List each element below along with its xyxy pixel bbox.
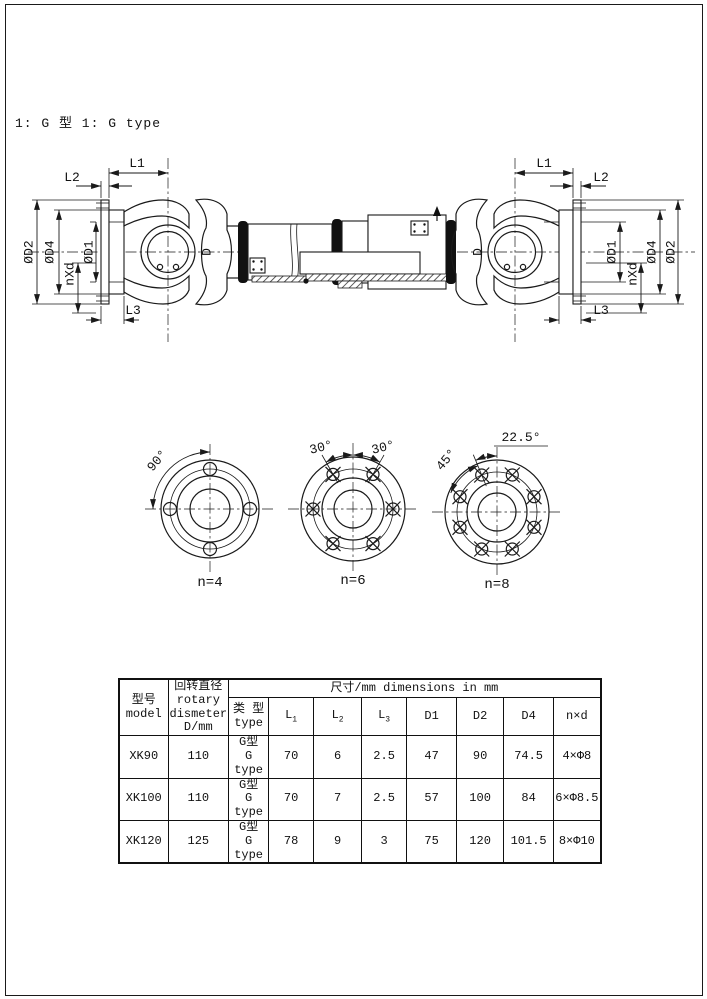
left-flange: [96, 200, 124, 304]
dim-label-d-right: D: [470, 248, 485, 256]
cell-model: XK90: [119, 736, 168, 778]
header-dimensions-span: 尺寸/mm dimensions in mm: [229, 679, 601, 698]
dim-label-d4-right: ØD4: [644, 240, 659, 264]
cell-l2: 6: [314, 736, 362, 778]
cell-l1: 70: [269, 778, 314, 820]
cell-d4: 84: [504, 778, 554, 820]
cell-rotary: 110: [168, 736, 229, 778]
header-rotary-en1: rotary: [177, 693, 220, 707]
cell-l1: 70: [269, 736, 314, 778]
view-label-n6: n=6: [340, 573, 365, 589]
header-model: 型号 model: [119, 679, 168, 736]
table-row-xk120: XK120 125 G型G type 78 9 3 75 120 101.5 8…: [119, 820, 601, 863]
spec-table-container: 型号 model 回转直径 rotary dismeter D/mm 尺寸/mm…: [118, 678, 602, 864]
angle-label-22-5: 22.5°: [501, 430, 540, 445]
angle-label-90: 90°: [144, 447, 171, 475]
angle-label-30-left: 30°: [308, 437, 334, 457]
cell-model: XK120: [119, 820, 168, 863]
seal-ring: [238, 221, 248, 283]
flange-view-n8: 45° 22.5° n=8: [432, 430, 562, 593]
dim-label-nxd-left: nXd: [62, 262, 77, 285]
cell-nxd: 8×Φ10: [554, 820, 601, 863]
table-row-xk100: XK100 110 G型G type 70 7 2.5 57 100 84 6×…: [119, 778, 601, 820]
cell-l1: 78: [269, 820, 314, 863]
flange-view-n6: 30° 30° n=6: [288, 437, 418, 589]
dim-label-d-left: D: [199, 248, 214, 256]
cell-rotary: 110: [168, 778, 229, 820]
dim-label-l3-right: L3: [593, 303, 609, 318]
cell-nxd: 6×Φ8.5: [554, 778, 601, 820]
header-rotary-diameter: 回转直径 rotary dismeter D/mm: [168, 679, 229, 736]
cell-l3: 2.5: [362, 736, 407, 778]
cell-type: G型G type: [229, 736, 269, 778]
cell-nxd: 4×Φ8: [554, 736, 601, 778]
header-l3: L3: [362, 698, 407, 736]
dim-label-nxd-right: nXd: [625, 262, 640, 285]
dim-label-d2-left: ØD2: [21, 240, 36, 263]
dim-label-l1-left: L1: [129, 156, 145, 171]
dim-label-d1-right: ØD1: [604, 240, 619, 264]
shaft-assembly-drawing: ØD2 ØD4 nXd ØD1 L2 L1 L3: [21, 156, 695, 342]
header-type-zh: 类 型: [233, 702, 264, 716]
dim-label-d4-left: ØD4: [42, 240, 57, 264]
cell-d2: 120: [457, 820, 504, 863]
header-l2: L2: [314, 698, 362, 736]
dim-label-d1-left: ØD1: [81, 240, 96, 264]
telescoping-shaft: [227, 206, 456, 289]
view-label-n4: n=4: [197, 575, 222, 591]
type-note: 1: G 型 1: G type: [15, 112, 161, 131]
cell-d4: 74.5: [504, 736, 554, 778]
header-rotary-en2: dismeter: [170, 707, 228, 721]
header-d1: D1: [407, 698, 457, 736]
cell-d2: 90: [457, 736, 504, 778]
cell-d1: 75: [407, 820, 457, 863]
grease-fitting-plate: [250, 258, 265, 273]
dimensions-table: 型号 model 回转直径 rotary dismeter D/mm 尺寸/mm…: [118, 678, 602, 864]
header-rotary-unit: D/mm: [184, 720, 213, 734]
dim-label-d2-right: ØD2: [663, 240, 678, 263]
spline-sleeve: [300, 252, 420, 274]
spline-rod: [252, 276, 306, 282]
header-model-zh: 型号: [132, 693, 156, 707]
cell-l2: 9: [314, 820, 362, 863]
cell-d1: 57: [407, 778, 457, 820]
header-type-en: type: [234, 716, 263, 730]
drawing-sheet: 1: G 型 1: G type: [0, 0, 707, 999]
header-rotary-zh: 回转直径: [174, 679, 222, 693]
grease-fitting-plate: [411, 221, 428, 235]
dim-label-l3-left: L3: [125, 303, 141, 318]
view-label-n8: n=8: [484, 577, 509, 593]
cell-d2: 100: [457, 778, 504, 820]
technical-drawing-canvas: ØD2 ØD4 nXd ØD1 L2 L1 L3: [0, 0, 707, 620]
cell-d4: 101.5: [504, 820, 554, 863]
header-d2: D2: [457, 698, 504, 736]
cell-l3: 2.5: [362, 778, 407, 820]
angle-label-45: 45°: [433, 446, 460, 474]
spline-hatch: [306, 274, 448, 281]
cell-type: G型G type: [229, 778, 269, 820]
cell-rotary: 125: [168, 820, 229, 863]
flange-view-n4: 90° n=4: [144, 444, 275, 591]
table-row-xk90: XK90 110 G型G type 70 6 2.5 47 90 74.5 4×…: [119, 736, 601, 778]
angle-label-30-right: 30°: [370, 437, 396, 457]
dim-label-l2-right: L2: [593, 170, 609, 185]
cell-type: G型G type: [229, 820, 269, 863]
dim-label-l2-left: L2: [64, 170, 80, 185]
header-d4: D4: [504, 698, 554, 736]
cell-model: XK100: [119, 778, 168, 820]
header-nxd: n×d: [554, 698, 601, 736]
cell-d1: 47: [407, 736, 457, 778]
header-model-en: model: [126, 707, 162, 721]
cell-l3: 3: [362, 820, 407, 863]
header-l1: L1: [269, 698, 314, 736]
header-type: 类 型 type: [229, 698, 269, 736]
dim-label-l1-right: L1: [536, 156, 552, 171]
cell-l2: 7: [314, 778, 362, 820]
